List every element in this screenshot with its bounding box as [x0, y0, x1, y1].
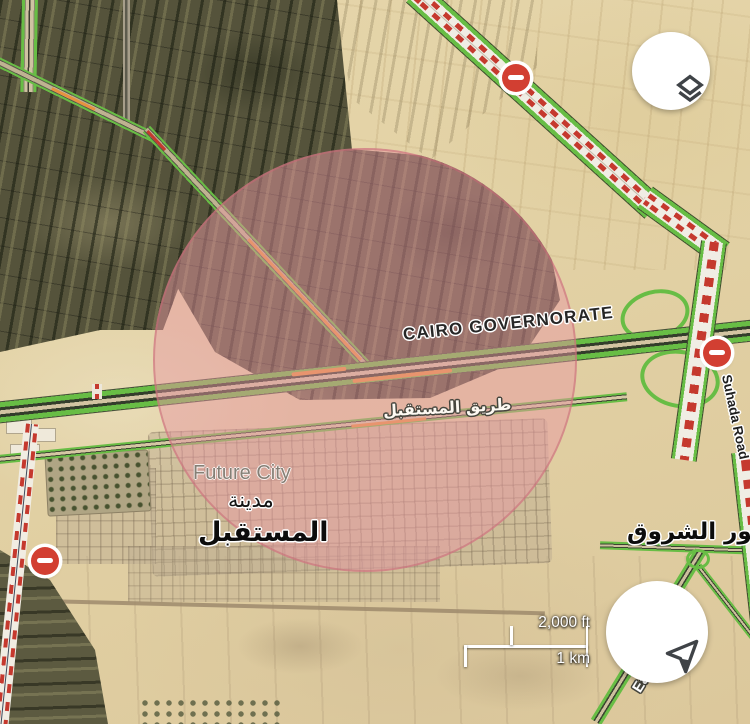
road-closed-icon [502, 64, 530, 92]
map-canvas[interactable]: CAIRO GOVERNORATE Future City مدينة المس… [0, 0, 750, 724]
scale-metric-label: 1 km [556, 651, 590, 667]
scale-line [464, 645, 588, 648]
roundabout [686, 549, 710, 569]
label-future-city: Future City [193, 463, 291, 483]
label-nour-el-shorouk: نور الشروق [627, 521, 750, 544]
closed-road-stub [92, 384, 102, 399]
tree-row [140, 698, 280, 724]
scale-imperial-label: 2,000 ft [538, 615, 590, 631]
road-segment [123, 0, 130, 121]
label-future-city-arabic-2: المستقبل [198, 519, 329, 546]
navigation-button[interactable] [606, 581, 708, 683]
tree-compound [44, 449, 151, 516]
map-scale-bar: 2,000 ft 1 km [456, 615, 592, 677]
scale-tick [464, 645, 467, 667]
scale-tick [510, 626, 513, 645]
closed-road-dashes [95, 384, 99, 399]
label-future-city-arabic-1: مدينة [228, 490, 274, 511]
layers-button[interactable] [632, 32, 710, 110]
selection-radius-circle [153, 148, 577, 572]
road-closed-icon [703, 339, 731, 367]
road-closed-icon [31, 547, 59, 575]
building [36, 428, 56, 442]
